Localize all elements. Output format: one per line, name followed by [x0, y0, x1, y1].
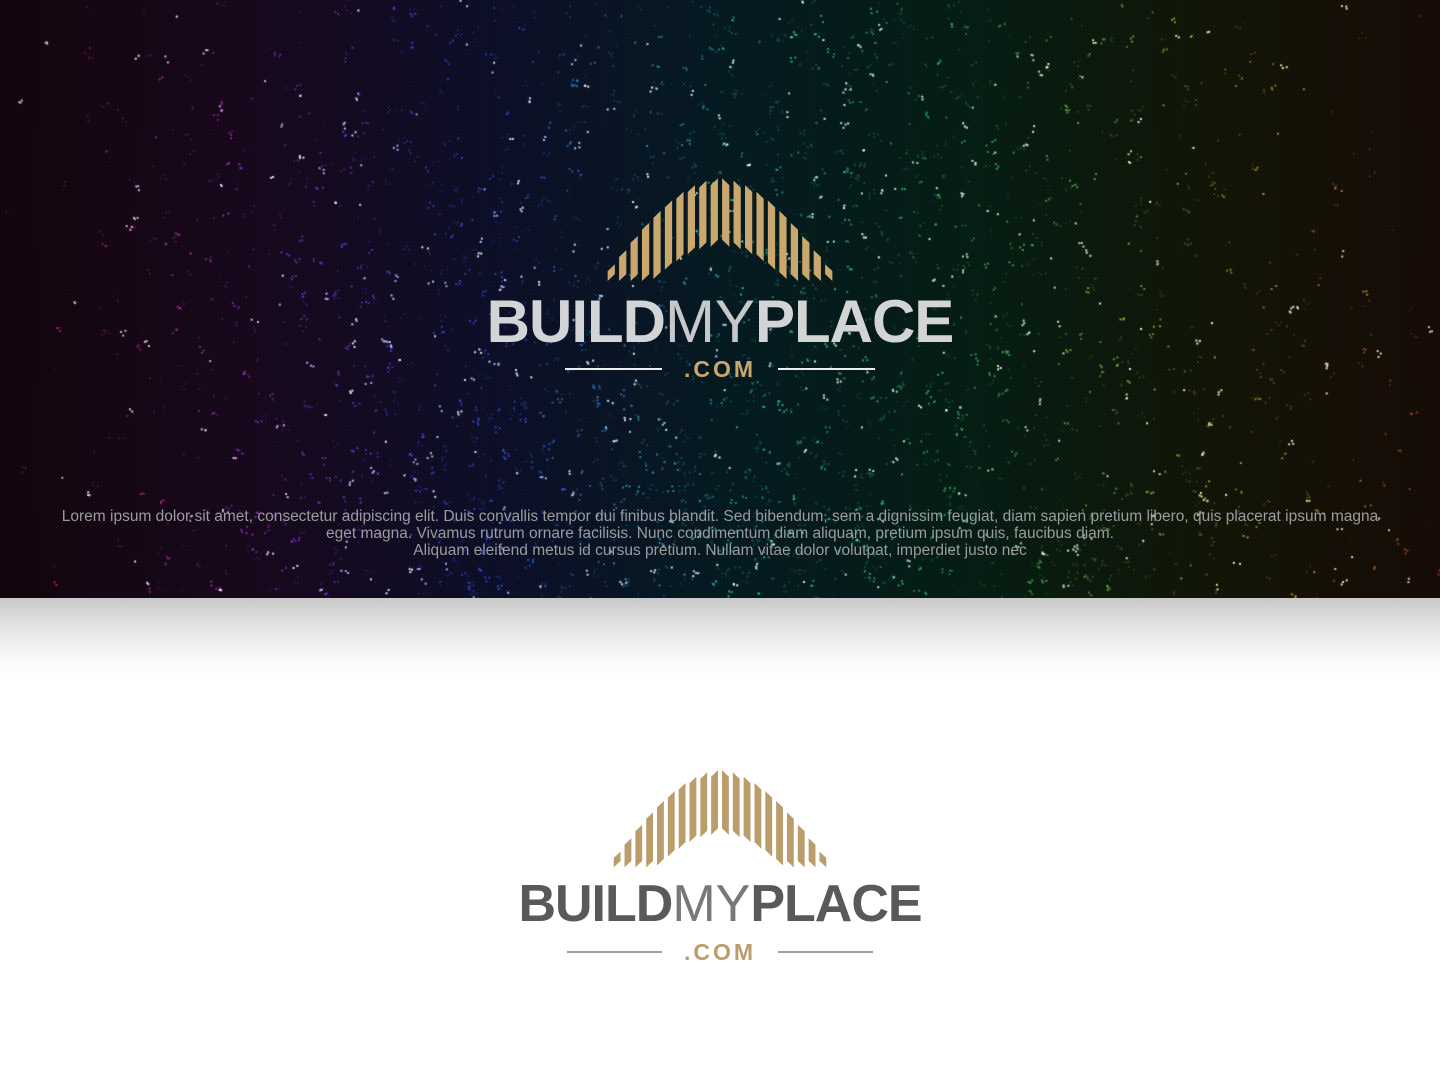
dark-banner: BUILDMYPLACE .COM Lorem ipsum dolor sit … — [0, 0, 1440, 598]
tld-label: .COM — [684, 356, 756, 382]
wordmark-place: PLACE — [750, 875, 921, 933]
wordmark-my: MY — [665, 288, 755, 355]
tld-label: .COM — [684, 939, 756, 965]
tld-divider-right — [778, 951, 873, 953]
wordmark-build: BUILD — [487, 288, 665, 355]
logo-presentation-canvas: BUILDMYPLACE .COM Lorem ipsum dolor sit … — [0, 0, 1440, 1080]
banner-shadow-gradient — [0, 598, 1440, 682]
buildmyplace-roof-icon — [601, 176, 839, 287]
tld-divider-left — [567, 951, 662, 953]
tld-row: .COM — [0, 939, 1440, 965]
tld-divider-right — [778, 368, 875, 370]
wordmark-place: PLACE — [755, 288, 953, 355]
lorem-line: Aliquam eleifend metus id cursus pretium… — [0, 542, 1440, 559]
wordmark-light-variant: BUILDMYPLACE — [0, 878, 1440, 930]
buildmyplace-roof-icon — [607, 768, 833, 873]
lorem-line: Lorem ipsum dolor sit amet, consectetur … — [0, 508, 1440, 525]
wordmark-dark-variant: BUILDMYPLACE — [0, 292, 1440, 352]
tld-divider-left — [565, 368, 662, 370]
wordmark-build: BUILD — [518, 875, 672, 933]
wordmark-my: MY — [672, 875, 750, 933]
lorem-line: eget magna. Vivamus rutrum ornare facili… — [0, 525, 1440, 542]
lorem-caption: Lorem ipsum dolor sit amet, consectetur … — [0, 508, 1440, 560]
tld-row: .COM — [0, 356, 1440, 382]
